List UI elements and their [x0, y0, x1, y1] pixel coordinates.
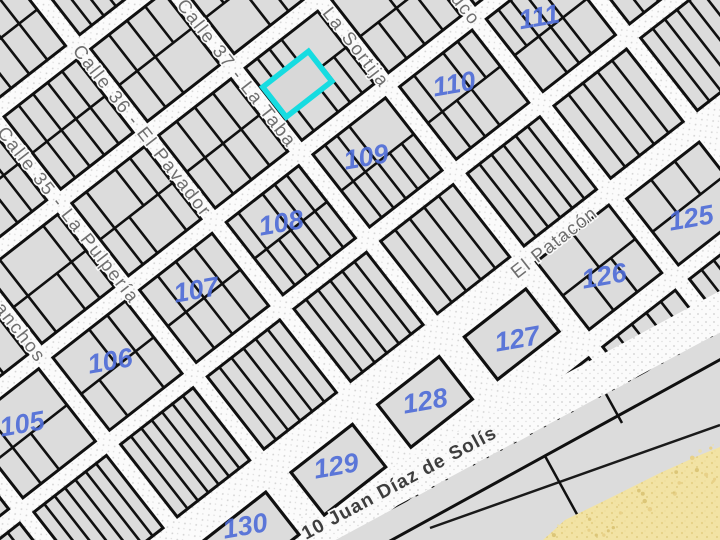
map-viewport[interactable]: anchosCalle 35 - La PulperíaCalle 36 - E… — [0, 0, 720, 540]
cadastral-map[interactable]: anchosCalle 35 - La PulperíaCalle 36 - E… — [0, 0, 720, 540]
